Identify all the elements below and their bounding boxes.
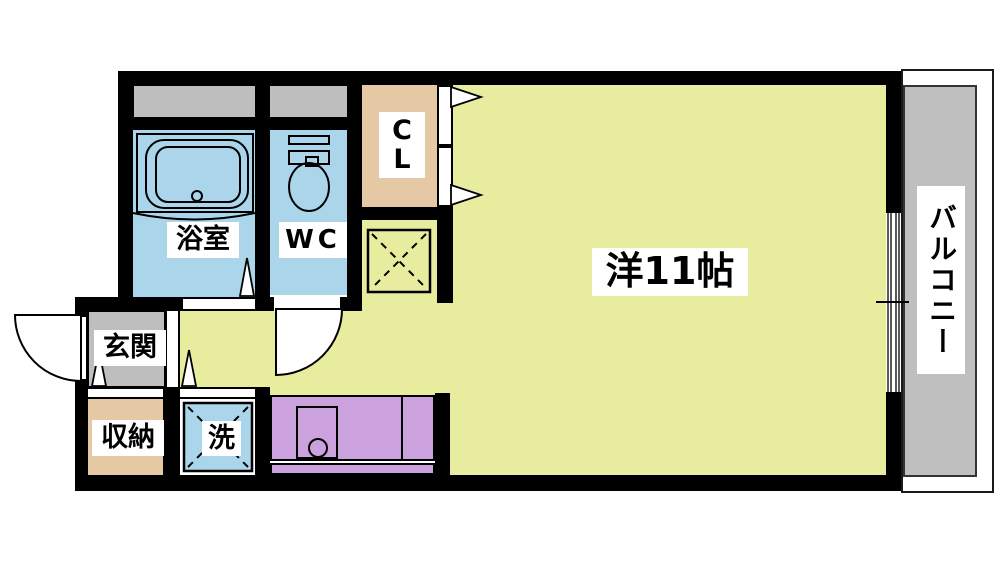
entrance-step: [165, 311, 180, 387]
closet-label-line1: C: [392, 116, 412, 145]
wall-right-upper: [886, 85, 901, 213]
wall-kitchen-right: [435, 393, 450, 477]
kitchen-counter-front: [270, 463, 435, 475]
wall-bath-wc-divider: [255, 130, 270, 311]
entrance-label: 玄関: [94, 330, 166, 366]
wall-left-upper: [118, 130, 133, 297]
toilet-label: WC: [279, 222, 347, 258]
wall-right-lower: [886, 392, 901, 477]
toilet-floor: [270, 130, 347, 295]
wall-storage-laundry: [163, 387, 180, 475]
floorplan: 浴室 WC C L 洋11帖 バルコニー 玄関 収納 洗: [0, 0, 1000, 562]
wall-bottom: [75, 475, 901, 491]
bathroom-floor: [133, 130, 255, 297]
entrance-door-swing-arc: [15, 315, 81, 381]
laundry-label: 洗: [202, 421, 241, 456]
western-room-label: 洋11帖: [592, 248, 748, 296]
laundry-door-opening: [180, 387, 255, 399]
pipe-space-1: [134, 86, 255, 117]
closet-label: C L: [379, 112, 425, 178]
pipe-space-2: [270, 86, 347, 117]
bathroom-label: 浴室: [167, 222, 239, 258]
wall-entrance-top: [75, 297, 183, 311]
balcony-label: バルコニー: [917, 186, 965, 374]
wall-laundry-kitchen: [255, 387, 270, 475]
niche-floor: [362, 215, 440, 310]
wc-door-opening: [274, 297, 340, 311]
storage-label: 収納: [92, 420, 164, 456]
entrance-door-panel: [75, 315, 88, 381]
storage-door-opening: [88, 387, 163, 399]
hall-floor: [180, 309, 440, 399]
wall-top: [118, 71, 901, 85]
wall-niche-right: [437, 207, 453, 303]
closet-label-line2: L: [393, 145, 410, 174]
closet-door-panel-upper: [437, 85, 453, 146]
closet-door-panel-lower: [437, 146, 453, 207]
bathroom-door-threshold: [183, 297, 255, 311]
kitchen-counter: [270, 395, 435, 461]
